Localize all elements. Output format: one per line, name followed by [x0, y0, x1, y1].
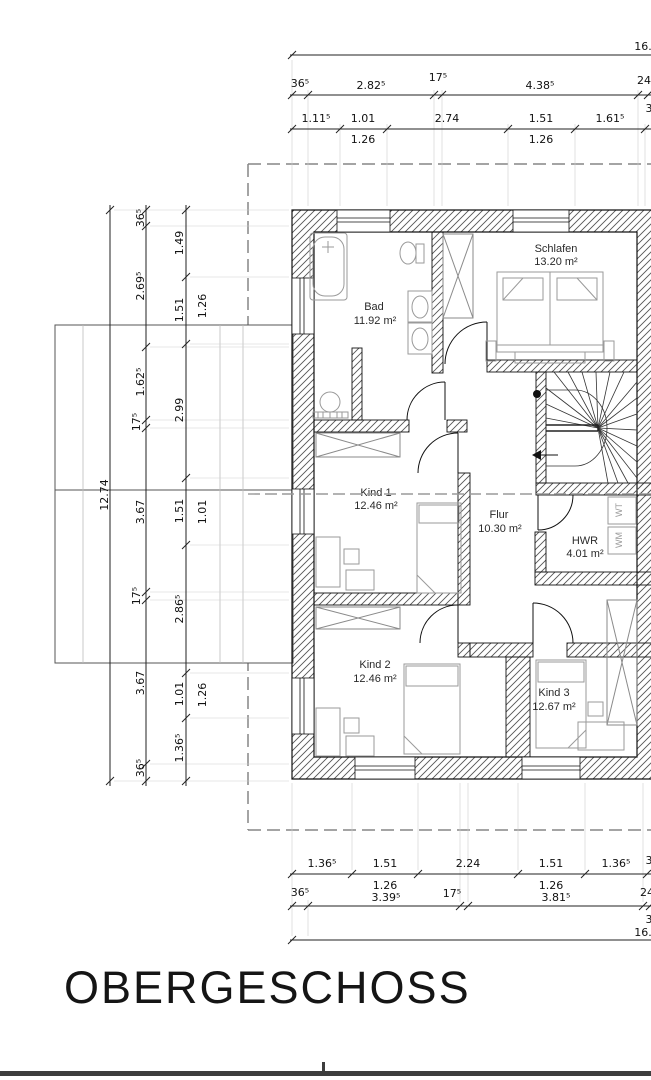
dim-label: 24 — [640, 886, 651, 899]
dim-bottom — [288, 870, 651, 944]
door-schlafen — [445, 322, 487, 364]
dim-label: 1.51 — [373, 857, 398, 870]
dim-label: 2.69⁵ — [134, 272, 147, 301]
dim-label: 16. — [634, 926, 651, 939]
room-hwr: HWR 4.01 m² — [566, 535, 604, 560]
wall-corner-bad — [447, 420, 467, 432]
dim-label: 16. — [634, 40, 651, 53]
desk-kind2 — [316, 708, 374, 756]
dim-label: 2.99 — [173, 398, 186, 423]
dim-label: 1.62⁵ — [134, 368, 147, 397]
dim-label: 3.67 — [134, 671, 147, 696]
room-schlafen: Schlafen 13.20 m² — [534, 243, 578, 268]
dim-label: 1.51 — [173, 499, 186, 524]
dim-label: 1.26 — [351, 133, 376, 146]
room-name: Schlafen — [535, 243, 578, 255]
dim-label: 1.26 — [196, 294, 209, 319]
stair-start-dot — [534, 391, 541, 398]
wall-stair-left — [536, 372, 546, 483]
room-kind3: Kind 3 12.67 m² — [532, 687, 576, 713]
wall-hwr-bottom — [535, 572, 651, 585]
wall-corridor-bottom-left — [470, 643, 533, 657]
dim-top-labels: 16. 36⁵ 2.82⁵ 17⁵ 4.38⁵ 24 1.11⁵ 1.01 2.… — [291, 40, 651, 146]
room-kind1: Kind 1 12.46 m² — [354, 487, 398, 512]
dim-label: 36⁵ — [134, 759, 147, 777]
dim-label: 1.01 — [351, 112, 376, 125]
nightstand-right — [604, 341, 614, 361]
door-hwr — [538, 495, 573, 530]
dim-label: 17⁵ — [130, 413, 143, 431]
dim-label: 1.01 — [173, 682, 186, 707]
window-bottom-kind2 — [355, 757, 415, 779]
wardrobe-kind1 — [316, 433, 400, 457]
room-bad: Bad 11.92 m² — [354, 301, 397, 327]
desk-kind3 — [578, 702, 624, 750]
room-area: 12.67 m² — [532, 701, 576, 713]
double-bed — [497, 272, 603, 363]
wall-corner-corridor — [458, 643, 470, 657]
wall-kind2-top — [314, 593, 458, 605]
window-top-bad — [337, 210, 390, 232]
room-name: Bad — [364, 301, 384, 313]
room-name: Kind 2 — [359, 659, 390, 671]
dim-label: 17⁵ — [443, 887, 461, 900]
dryer-label: WT — [614, 503, 624, 517]
dim-label: 1.36⁵ — [308, 857, 337, 870]
dim-label: 1.51 — [529, 112, 554, 125]
room-name: HWR — [572, 535, 598, 547]
page-title: OBERGESCHOSS — [64, 962, 471, 1014]
dim-label: 1.11⁵ — [302, 112, 331, 125]
dim-label: 1.36⁵ — [173, 734, 186, 763]
washbasin-2 — [408, 323, 432, 354]
wall-kind1-right — [458, 473, 470, 605]
dim-label: 1.49 — [173, 231, 186, 256]
dim-label: 3 — [646, 102, 651, 115]
dim-label: 17⁵ — [130, 587, 143, 605]
dim-label: 36⁵ — [134, 209, 147, 227]
wardrobe-kind2 — [316, 607, 400, 629]
dim-label: 1.36⁵ — [602, 857, 631, 870]
wall-corridor-bottom-right — [567, 643, 651, 657]
dim-label: 3 — [646, 913, 651, 926]
dim-label: 36⁵ — [291, 77, 309, 90]
bathtub — [310, 233, 347, 300]
toilet — [400, 242, 424, 264]
wall-hwr-top — [536, 483, 651, 495]
wall-hwr-left — [535, 532, 546, 572]
wall-bad-bottom — [314, 420, 409, 432]
dim-label: 1.51 — [173, 298, 186, 323]
room-kind2: Kind 2 12.46 m² — [353, 659, 397, 685]
window-left-kind2 — [292, 678, 314, 734]
dim-label: 3 — [646, 854, 651, 867]
door-bad — [407, 382, 445, 420]
dim-label: 1.01 — [196, 500, 209, 525]
staircase — [532, 372, 637, 483]
washer-label: WM — [614, 532, 624, 548]
window-left-kind1 — [292, 489, 314, 534]
door-kind2 — [420, 605, 458, 643]
room-area: 4.01 m² — [566, 548, 604, 560]
wardrobe-kind3 — [607, 600, 637, 725]
dim-label: 2.86⁵ — [173, 595, 186, 624]
window-left-bad — [292, 278, 314, 334]
dim-label: 3.81⁵ — [542, 891, 571, 904]
shower-drain — [313, 392, 348, 418]
dim-label: 24 — [637, 74, 651, 87]
dim-label: 3.67 — [134, 500, 147, 525]
desk-kind1 — [316, 537, 374, 590]
dim-label: 2.24 — [456, 857, 481, 870]
room-area: 12.46 m² — [353, 673, 397, 685]
washbasin-1 — [408, 291, 432, 322]
sheet-border — [0, 1062, 651, 1076]
floor-plan-drawing: 16. 36⁵ 2.82⁵ 17⁵ 4.38⁵ 24 1.11⁵ 1.01 2.… — [0, 0, 651, 1080]
room-area: 12.46 m² — [354, 500, 398, 512]
stair-handrail — [546, 425, 598, 431]
room-area: 13.20 m² — [534, 256, 578, 268]
window-top-schlafen — [513, 210, 569, 232]
room-area: 10.30 m² — [478, 523, 522, 535]
dim-label: 3.39⁵ — [372, 891, 401, 904]
dim-label: 36⁵ — [291, 886, 309, 899]
dim-label: 1.61⁵ — [596, 112, 625, 125]
dim-label: 1.26 — [196, 683, 209, 708]
dim-label: 12.74 — [98, 479, 111, 511]
wall-schlafen-bottom — [487, 360, 637, 372]
dim-label: 17⁵ — [429, 71, 447, 84]
room-name: Kind 1 — [360, 487, 391, 499]
door-kind3 — [533, 603, 573, 643]
room-labels: Bad 11.92 m² Schlafen 13.20 m² Kind 1 12… — [353, 243, 624, 713]
wardrobe-schlafen — [443, 234, 473, 318]
room-name: Flur — [490, 509, 509, 521]
bed-kind2 — [404, 664, 460, 754]
dim-label: 2.82⁵ — [357, 79, 386, 92]
dim-label: 1.51 — [539, 857, 564, 870]
door-kind1 — [418, 433, 458, 473]
room-name: Kind 3 — [538, 687, 569, 699]
bed-kind1 — [417, 503, 461, 593]
wall-shower-stub — [352, 348, 362, 420]
wall-bad-right — [432, 232, 443, 373]
room-flur: Flur 10.30 m² — [478, 509, 522, 535]
wall-kind2-kind3 — [506, 657, 530, 757]
dim-label: 1.26 — [529, 133, 554, 146]
window-bottom-kind3 — [522, 757, 580, 779]
dim-label: 4.38⁵ — [526, 79, 555, 92]
dim-label: 2.74 — [435, 112, 460, 125]
floor-plan-sheet: 16. 36⁵ 2.82⁵ 17⁵ 4.38⁵ 24 1.11⁵ 1.01 2.… — [0, 0, 651, 1080]
room-area: 11.92 m² — [354, 315, 397, 327]
dim-bottom-labels: 1.36⁵ 1.51 2.24 1.51 1.36⁵ 3 1.26 1.26 3… — [291, 854, 651, 939]
